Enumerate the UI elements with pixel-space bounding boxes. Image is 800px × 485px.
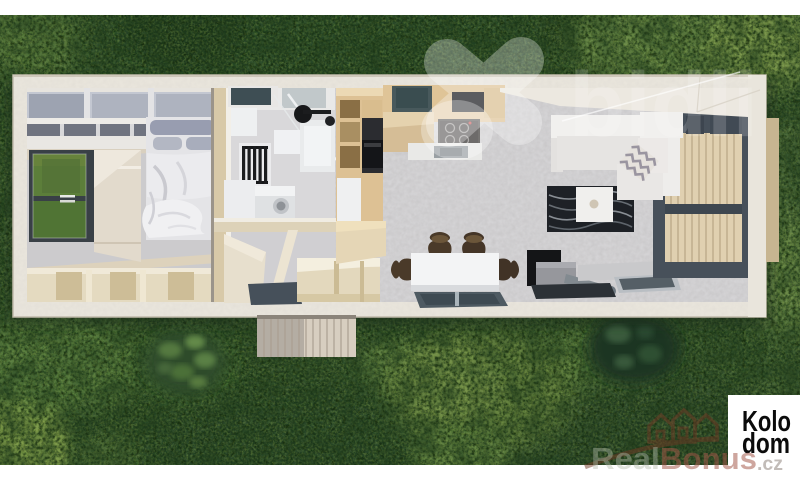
svg-text:.cz: .cz bbox=[757, 454, 783, 475]
svg-text:Bonus: Bonus bbox=[660, 441, 757, 476]
svg-text:bidli: bidli bbox=[569, 54, 758, 156]
svg-text:Real: Real bbox=[591, 441, 660, 476]
